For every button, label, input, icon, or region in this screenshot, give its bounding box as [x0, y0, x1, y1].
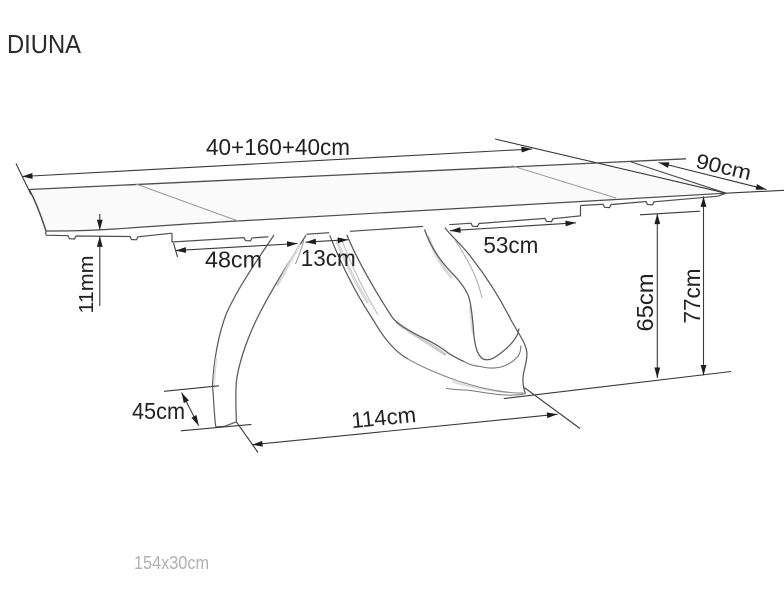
svg-text:45cm: 45cm	[132, 398, 185, 424]
svg-text:114cm: 114cm	[350, 402, 417, 433]
svg-text:DIUNA: DIUNA	[7, 31, 81, 59]
svg-text:13cm: 13cm	[301, 245, 356, 271]
svg-text:77cm: 77cm	[679, 269, 705, 324]
svg-text:90cm: 90cm	[694, 150, 754, 185]
svg-text:48cm: 48cm	[205, 247, 262, 273]
svg-text:154x30cm: 154x30cm	[134, 553, 209, 573]
svg-text:65cm: 65cm	[632, 274, 658, 332]
svg-text:53cm: 53cm	[483, 232, 538, 258]
svg-text:40+160+40cm: 40+160+40cm	[206, 134, 350, 160]
svg-text:11mm: 11mm	[76, 256, 98, 314]
